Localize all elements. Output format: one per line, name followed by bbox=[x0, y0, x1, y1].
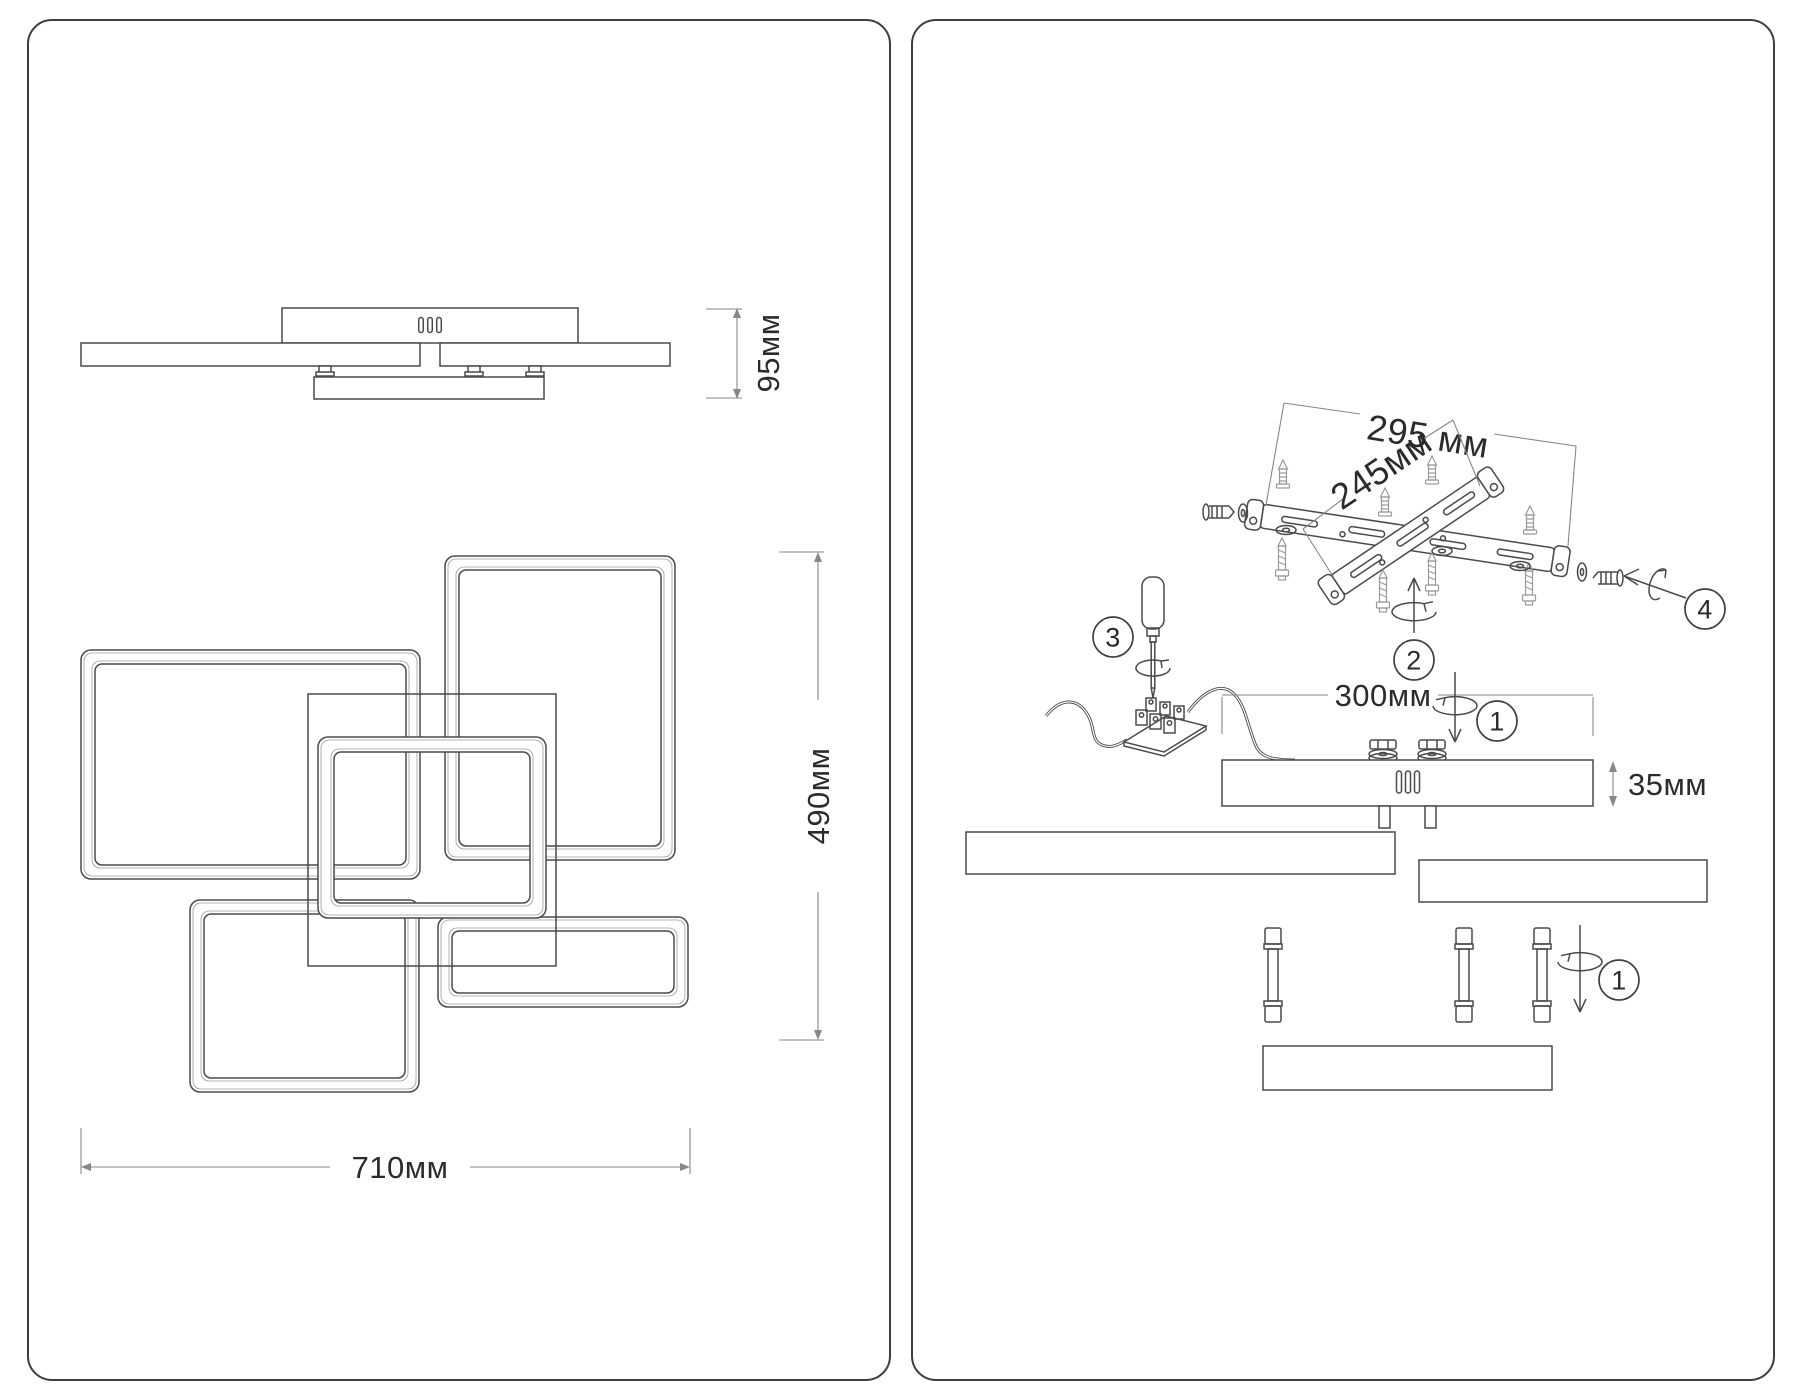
svg-text:2: 2 bbox=[1406, 645, 1422, 675]
step-3-badge: 3 bbox=[1093, 617, 1133, 657]
lower-frame-profile bbox=[314, 377, 544, 399]
overall-depth-label: 490мм bbox=[801, 748, 836, 845]
canopy-height-label: 35мм bbox=[1628, 767, 1707, 802]
frame-bar-lower bbox=[1263, 1046, 1552, 1090]
step-2-badge: 2 bbox=[1394, 640, 1434, 680]
frame-bar-right-profile bbox=[440, 343, 670, 366]
svg-text:4: 4 bbox=[1697, 594, 1713, 624]
bracket-bar-long-end-tab bbox=[1550, 545, 1570, 577]
canopy-profile bbox=[282, 308, 578, 343]
svg-text:1: 1 bbox=[1611, 965, 1627, 995]
side-height-label: 95мм bbox=[751, 313, 786, 392]
overall-width-label: 710мм bbox=[352, 1150, 449, 1185]
canopy-tab-right bbox=[1425, 806, 1436, 828]
instruction-drawing: 95мм 490мм 710мм 295 мм 245мм bbox=[0, 0, 1800, 1400]
canopy-width-label: 300мм bbox=[1335, 678, 1432, 713]
frame-bar-upper-left bbox=[966, 832, 1395, 874]
canopy-tab-left bbox=[1379, 806, 1390, 828]
step-4-badge: 4 bbox=[1685, 589, 1725, 629]
svg-text:1: 1 bbox=[1489, 706, 1505, 736]
installation-instruction-sheet: 95мм 490мм 710мм 295 мм 245мм bbox=[0, 0, 1800, 1400]
svg-text:3: 3 bbox=[1105, 622, 1121, 652]
frame-bar-left-profile bbox=[81, 343, 420, 366]
step-1-badge-lower: 1 bbox=[1599, 960, 1639, 1000]
step-1-badge-upper: 1 bbox=[1477, 701, 1517, 741]
canopy-body bbox=[1222, 760, 1593, 806]
frame-bar-upper-right bbox=[1419, 860, 1707, 902]
